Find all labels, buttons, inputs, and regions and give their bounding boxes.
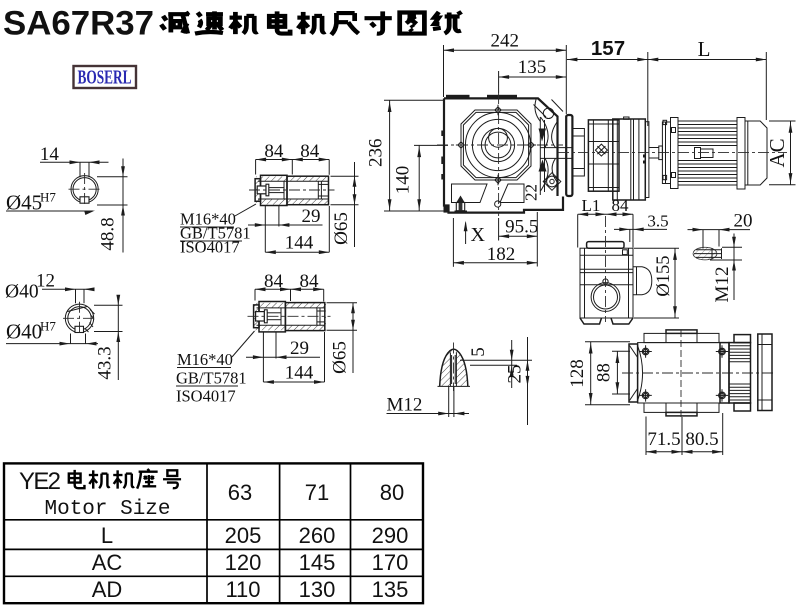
svg-text:X: X <box>471 224 486 246</box>
svg-text:29: 29 <box>302 206 321 227</box>
svg-text:SA67R37: SA67R37 <box>3 5 154 43</box>
svg-text:130: 130 <box>299 577 336 602</box>
svg-text:22: 22 <box>522 184 541 201</box>
svg-text:M12: M12 <box>712 267 733 303</box>
svg-text:135: 135 <box>518 57 547 78</box>
svg-text:71: 71 <box>305 480 329 505</box>
svg-text:120: 120 <box>225 550 262 575</box>
svg-text:20: 20 <box>734 211 753 232</box>
svg-text:M12: M12 <box>387 395 423 416</box>
svg-text:25: 25 <box>505 365 526 384</box>
svg-text:242: 242 <box>491 31 520 52</box>
svg-text:135: 135 <box>372 577 409 602</box>
svg-text:GB/T5781: GB/T5781 <box>176 369 247 388</box>
svg-text:140: 140 <box>392 166 413 195</box>
svg-text:Ø155: Ø155 <box>654 255 674 296</box>
svg-text:AC: AC <box>92 550 123 575</box>
svg-text:Ø65: Ø65 <box>330 341 351 374</box>
svg-text:5: 5 <box>468 347 489 357</box>
svg-text:Ø40: Ø40 <box>5 282 39 303</box>
svg-text:12: 12 <box>36 271 55 292</box>
svg-text:205: 205 <box>225 523 262 548</box>
svg-text:ISO4017: ISO4017 <box>176 387 236 406</box>
svg-text:L: L <box>101 523 113 548</box>
svg-text:43.3: 43.3 <box>95 346 116 379</box>
svg-text:Ø65: Ø65 <box>331 212 352 245</box>
svg-text:144: 144 <box>285 363 314 384</box>
svg-text:128: 128 <box>567 359 588 388</box>
svg-text:80: 80 <box>380 480 404 505</box>
svg-text:Ø40: Ø40 <box>6 320 42 344</box>
svg-text:ISO4017: ISO4017 <box>180 238 240 257</box>
svg-text:AC: AC <box>765 138 789 167</box>
svg-text:84: 84 <box>264 141 284 162</box>
svg-text:145: 145 <box>299 550 336 575</box>
svg-text:63: 63 <box>228 480 252 505</box>
svg-text:95.5: 95.5 <box>505 217 538 238</box>
svg-text:84: 84 <box>612 196 630 215</box>
svg-text:144: 144 <box>285 233 314 254</box>
svg-text:L1: L1 <box>582 196 601 215</box>
svg-text:H7: H7 <box>40 190 56 205</box>
svg-text:29: 29 <box>290 338 309 359</box>
svg-text:48.8: 48.8 <box>98 217 119 250</box>
svg-text:80.5: 80.5 <box>685 429 718 450</box>
svg-text:H7: H7 <box>40 319 56 334</box>
svg-text:236: 236 <box>366 138 387 167</box>
svg-text:260: 260 <box>299 523 336 548</box>
svg-text:110: 110 <box>225 577 260 602</box>
svg-text:M16*40: M16*40 <box>177 350 233 369</box>
svg-text:157: 157 <box>591 37 625 60</box>
svg-text:YE2: YE2 <box>19 468 61 495</box>
svg-text:290: 290 <box>372 523 409 548</box>
svg-text:Motor Size: Motor Size <box>44 498 170 521</box>
svg-text:71.5: 71.5 <box>647 429 680 450</box>
svg-text:170: 170 <box>372 550 409 575</box>
svg-text:14: 14 <box>40 144 60 165</box>
svg-text:88: 88 <box>594 363 615 382</box>
svg-text:3.5: 3.5 <box>647 212 668 231</box>
svg-text:AD: AD <box>92 577 123 602</box>
svg-text:182: 182 <box>487 244 516 265</box>
svg-text:BOSERL: BOSERL <box>78 67 132 89</box>
svg-text:84: 84 <box>300 141 320 162</box>
svg-text:L: L <box>698 37 711 61</box>
